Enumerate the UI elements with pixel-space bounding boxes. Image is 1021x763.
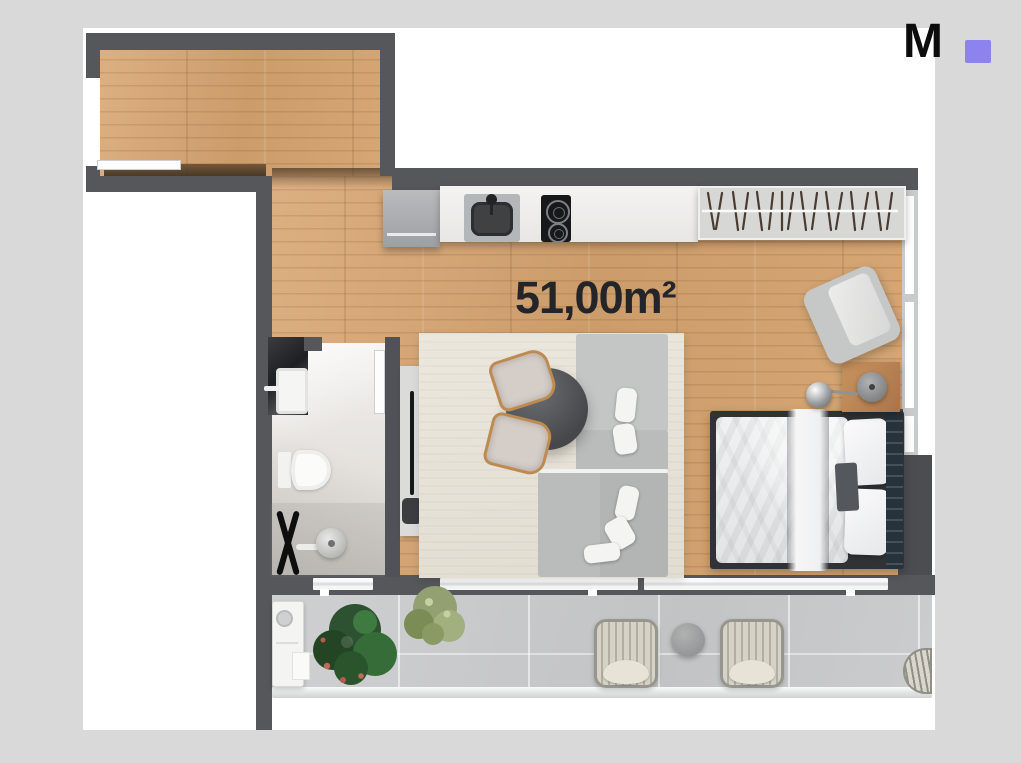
entry-hall-floor xyxy=(98,46,395,176)
bathroom-door-leaf xyxy=(374,350,385,414)
area-label: 51,00m² xyxy=(515,272,676,324)
plant-light-icon xyxy=(399,580,471,650)
sink-faucet-icon xyxy=(264,386,280,391)
floor-plan-render: 51,00m² M xyxy=(0,0,1021,763)
toilet-tank xyxy=(278,452,291,488)
cooktop-burner-2 xyxy=(548,223,568,243)
toilet-bowl xyxy=(291,450,331,490)
balcony-chair-left xyxy=(594,619,658,688)
brand-logo-square xyxy=(965,40,991,63)
corridor-shadow xyxy=(272,168,392,188)
bed-accent-pillow xyxy=(835,462,859,511)
hangers-icon xyxy=(700,188,900,234)
fridge-handle-line xyxy=(387,233,436,236)
brand-logo-letter: M xyxy=(903,18,943,66)
window-handle-tab-2 xyxy=(588,589,597,596)
wall-entry-bottom xyxy=(86,176,272,192)
balcony-chair-cushion xyxy=(603,660,649,684)
kitchen-fridge xyxy=(383,190,440,247)
sofa-cushion xyxy=(614,387,637,423)
bed-blanket-fold xyxy=(787,409,829,571)
right-window-pane-1 xyxy=(905,196,914,294)
kitchen-faucet-spout xyxy=(490,204,493,215)
wardrobe xyxy=(698,186,906,240)
right-window-pane-2 xyxy=(905,302,914,408)
right-window-pane-3 xyxy=(905,416,914,452)
laundry-seam xyxy=(276,642,298,644)
laundry-knob xyxy=(276,610,293,627)
wall-left-long xyxy=(256,176,272,730)
wall-step-vertical xyxy=(380,33,395,176)
cooktop-burner-1 xyxy=(546,200,570,224)
tv-wall xyxy=(385,337,400,577)
entry-door-jamb-top xyxy=(85,78,100,85)
sofa-cushion xyxy=(612,422,638,455)
floor-lamp-sphere xyxy=(806,382,832,408)
bathroom-sink xyxy=(276,368,308,414)
drying-rack-x-icon xyxy=(272,510,304,576)
bed-headboard xyxy=(886,409,903,569)
window-handle-tab-3 xyxy=(846,589,855,596)
shower-head-dot xyxy=(328,540,335,547)
entry-door-opening xyxy=(83,84,100,162)
sofa-seam xyxy=(539,469,668,473)
entry-door-leaf xyxy=(97,160,181,170)
plant-dark-icon xyxy=(303,592,405,690)
table-lamp-dot xyxy=(869,384,875,390)
wall-entry-top xyxy=(86,33,395,50)
tv-screen-icon xyxy=(410,391,414,495)
balcony-side-table xyxy=(671,623,705,657)
balcony-chair-right xyxy=(720,619,784,688)
bathroom-door-jamb xyxy=(304,337,322,351)
balcony-chair-cushion xyxy=(729,660,775,684)
